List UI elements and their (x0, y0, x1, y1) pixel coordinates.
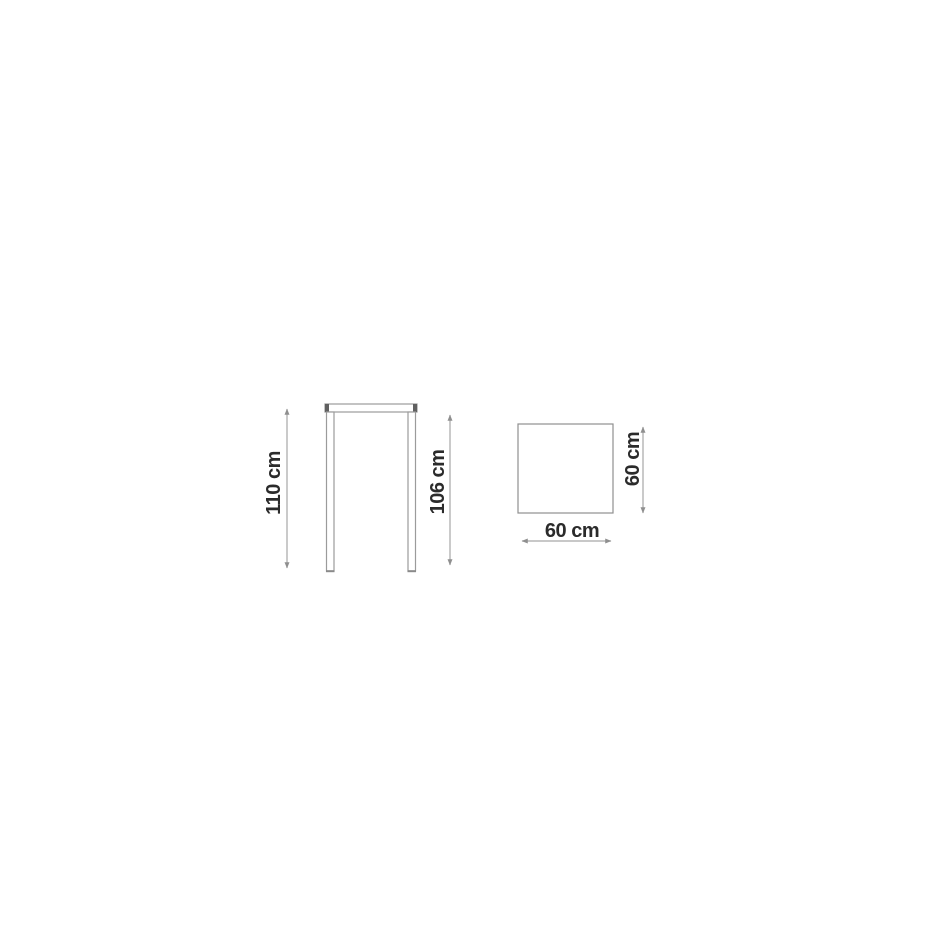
dimension-drawing: 110 cm 106 cm 60 cm 60 cm (0, 0, 950, 950)
dim-label-total-height: 110 cm (263, 451, 285, 515)
table-leg-left (327, 412, 335, 571)
dim-top-width: 60 cm (522, 520, 611, 542)
tabletop-front (325, 404, 417, 412)
dim-label-top-width: 60 cm (545, 520, 599, 542)
tabletop-top-view (518, 424, 613, 513)
dim-label-under-top-height: 106 cm (427, 450, 449, 515)
table-front-view (325, 404, 417, 571)
dim-label-top-depth: 60 cm (622, 432, 644, 486)
dim-total-height: 110 cm (263, 409, 287, 568)
tabletop-end-cap-left (325, 404, 329, 412)
tabletop-end-cap-right (413, 404, 417, 412)
drawing-canvas: 110 cm 106 cm 60 cm 60 cm (0, 0, 950, 950)
dim-under-top-height: 106 cm (427, 415, 450, 565)
table-leg-right (408, 412, 416, 571)
dim-top-depth: 60 cm (622, 427, 644, 513)
table-top-view (518, 424, 613, 513)
